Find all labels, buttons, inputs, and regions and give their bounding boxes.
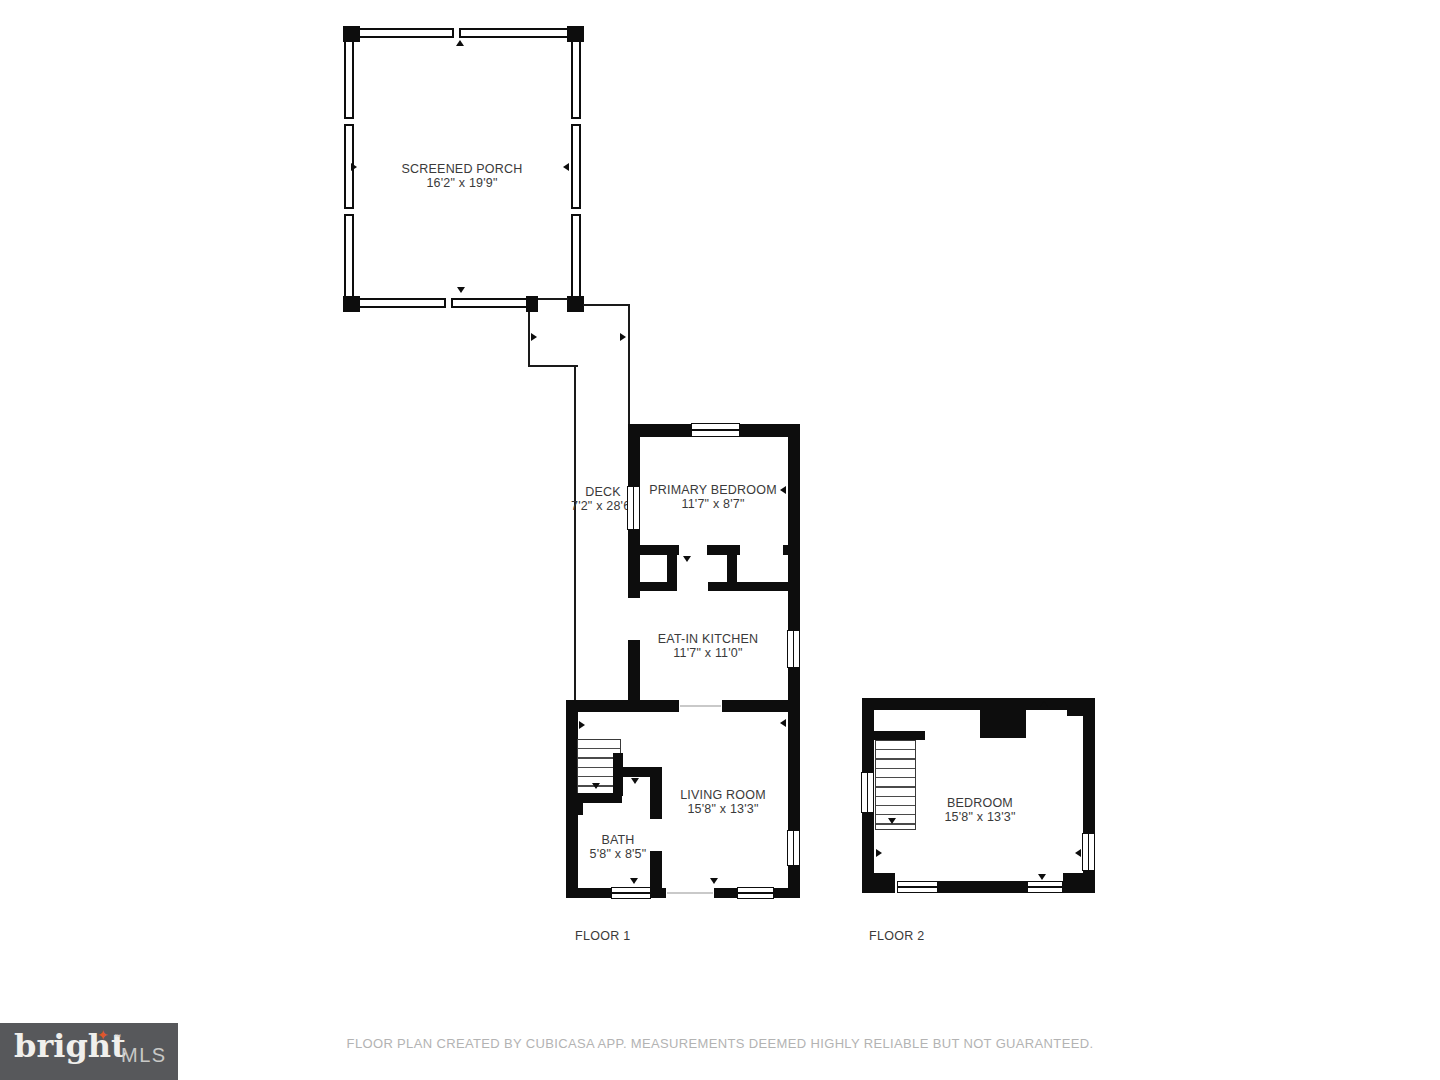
porch-screen-divider xyxy=(344,117,354,126)
door-marker-arrow xyxy=(1038,874,1046,880)
deck-edge xyxy=(528,312,530,367)
stair-wall xyxy=(874,731,925,740)
room-label-eat-in-kitchen: EAT-IN KITCHEN 11'7" x 11'0" xyxy=(598,633,818,660)
room-dims: 15'8" x 13'3" xyxy=(613,803,833,817)
wall-segment xyxy=(862,698,1095,710)
door-marker-arrow xyxy=(876,849,882,857)
deck-edge xyxy=(628,306,630,424)
porch-screen-wall-top xyxy=(360,28,567,38)
room-name: EAT-IN KITCHEN xyxy=(598,633,818,647)
window xyxy=(737,887,774,899)
porch-screen-divider xyxy=(571,117,581,126)
door-marker-arrow xyxy=(531,333,537,341)
door-opening xyxy=(678,545,708,555)
floorplan-canvas: SCREENED PORCH 16'2" x 19'9" DECK 7'2" x… xyxy=(0,0,1440,1080)
window xyxy=(1027,881,1063,893)
porch-corner-post xyxy=(343,26,360,42)
window xyxy=(691,423,740,437)
disclaimer-text: FLOOR PLAN CREATED BY CUBICASA APP. MEAS… xyxy=(0,1036,1440,1051)
porch-corner-post xyxy=(567,296,584,312)
door-marker-arrow xyxy=(631,778,639,784)
room-name: LIVING ROOM xyxy=(613,789,833,803)
porch-wall-post xyxy=(526,296,538,312)
wall-segment xyxy=(788,424,800,630)
wall-segment xyxy=(783,545,800,555)
wall-segment xyxy=(708,545,740,555)
door-marker-arrow xyxy=(683,556,691,562)
room-dims: 5'8" x 8'5" xyxy=(508,848,728,862)
porch-screen-divider xyxy=(452,28,461,38)
wall-segment xyxy=(980,710,1026,738)
room-name: BATH xyxy=(508,834,728,848)
porch-screen-wall-right xyxy=(571,42,581,296)
wall-segment xyxy=(938,881,1027,893)
porch-opening-line xyxy=(538,298,568,300)
door-marker-arrow xyxy=(630,878,638,884)
room-name: BEDROOM xyxy=(870,797,1090,811)
door-marker-arrow xyxy=(1040,701,1048,707)
wall-segment xyxy=(566,888,612,898)
door-marker-arrow xyxy=(457,287,465,293)
room-label-bath: BATH 5'8" x 8'5" xyxy=(508,834,728,861)
door-marker-arrow xyxy=(780,719,786,727)
window xyxy=(611,887,651,899)
wall-segment xyxy=(1067,710,1083,716)
room-dims: 16'2" x 19'9" xyxy=(352,177,572,191)
door-marker-arrow xyxy=(1075,849,1081,857)
room-label-living-room: LIVING ROOM 15'8" x 13'3" xyxy=(613,789,833,816)
stair-direction-arrow xyxy=(592,783,600,789)
door-marker-arrow xyxy=(579,721,585,729)
room-dims: 15'8" x 13'3" xyxy=(870,811,1090,825)
room-dims: 11'7" x 11'0" xyxy=(598,647,818,661)
wall-segment xyxy=(862,698,874,772)
deck-edge xyxy=(574,367,576,702)
wall-segment xyxy=(628,545,678,555)
opening-threshold-line xyxy=(667,892,713,894)
closet-wall xyxy=(667,555,677,583)
room-name: SCREENED PORCH xyxy=(352,163,572,177)
logo-mls-text: MLS xyxy=(121,1044,167,1067)
room-label-screened-porch: SCREENED PORCH 16'2" x 19'9" xyxy=(352,163,572,190)
wall-segment xyxy=(773,888,800,898)
wall-segment xyxy=(613,767,662,777)
door-marker-arrow xyxy=(620,333,626,341)
deck-edge xyxy=(583,304,630,306)
closet-wall xyxy=(628,582,677,591)
window xyxy=(787,830,800,866)
wall-segment xyxy=(1063,873,1095,893)
closet-wall xyxy=(708,582,795,591)
wall-segment xyxy=(862,873,895,893)
floor1-label: FLOOR 1 xyxy=(575,929,631,943)
window xyxy=(1082,833,1095,871)
room-name: PRIMARY BEDROOM xyxy=(603,484,823,498)
floor2-label: FLOOR 2 xyxy=(869,929,925,943)
porch-corner-post xyxy=(343,296,360,312)
room-label-bedroom: BEDROOM 15'8" x 13'3" xyxy=(870,797,1090,824)
porch-screen-divider xyxy=(344,207,354,216)
logo-star-icon: ✦ xyxy=(97,1027,109,1043)
door-marker-arrow xyxy=(456,40,464,46)
porch-screen-divider xyxy=(444,298,453,308)
wall-segment xyxy=(628,424,640,486)
room-dims: 11'7" x 8'7" xyxy=(603,498,823,512)
porch-screen-wall-bottom xyxy=(360,298,526,308)
deck-edge xyxy=(528,365,578,367)
logo-trademark-symbol: ™ xyxy=(114,1033,121,1040)
porch-screen-divider xyxy=(571,207,581,216)
porch-corner-post xyxy=(567,26,584,42)
door-marker-arrow xyxy=(710,878,718,884)
logo-brand-text: bright xyxy=(14,1029,126,1063)
wall-segment xyxy=(566,700,678,712)
opening-threshold-line xyxy=(680,705,721,707)
wall-segment xyxy=(723,700,800,712)
room-label-primary-bedroom: PRIMARY BEDROOM 11'7" x 8'7" xyxy=(603,484,823,511)
window xyxy=(897,881,938,893)
wall-segment xyxy=(574,803,583,815)
wall-segment xyxy=(715,888,738,898)
